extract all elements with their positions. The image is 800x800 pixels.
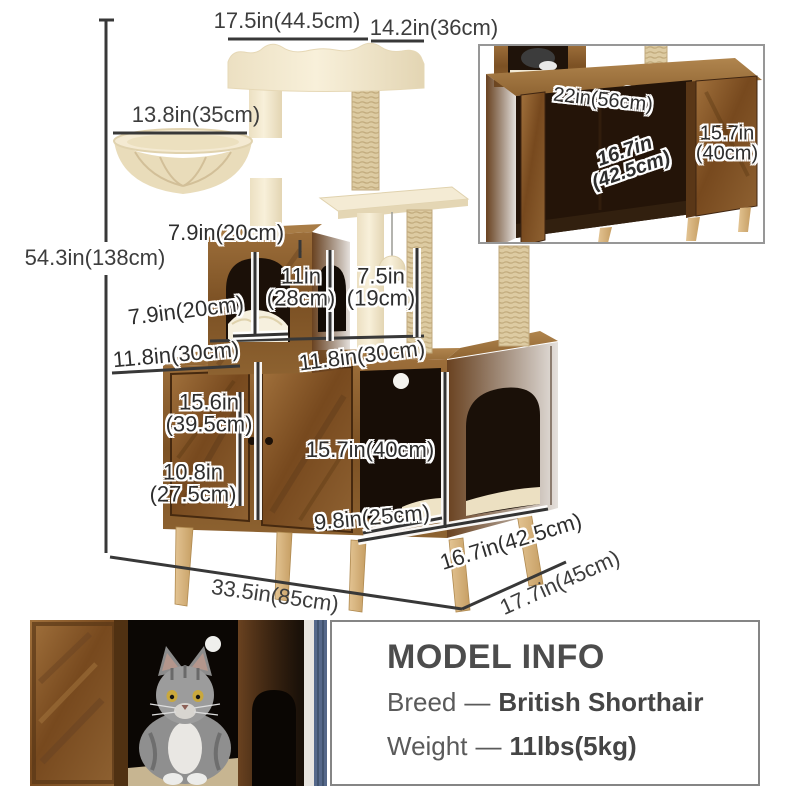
model-info-panel: MODEL INFO Breed—British Shorthair Weigh… [330,620,760,786]
dim-hammock-width: 13.8in(35cm) [132,104,260,126]
dim-condo-height: 7.9in(20cm) [168,222,284,244]
cat-photo [30,620,327,786]
weight-separator: — [475,731,501,761]
dim-condo-interior-height: 11in (28cm) [267,266,335,311]
scratching-post [499,246,529,346]
top-platform [228,43,424,91]
dim-top-platform-depth: 14.2in(36cm) [370,17,498,39]
breed-separator: — [464,687,490,717]
cable-hole [393,373,409,389]
breed-label: Breed [387,687,456,717]
dim-total-height: 54.3in(138cm) [25,247,166,269]
dim-top-platform-width: 17.5in(44.5cm) [214,10,361,32]
dim-inset-door-height: 15.7in (40cm) [696,124,758,165]
dim-post-section-height: 7.5in (19cm) [347,266,415,311]
breed-row: Breed—British Shorthair [387,687,758,718]
dim-lower-section-height: 10.8in (27.5cm) [150,462,237,507]
hammock-basket [114,129,252,194]
door-knob [265,437,273,445]
dim-left-door-height: 15.6in (39.5cm) [166,392,253,437]
scratching-post [352,86,379,190]
weight-label: Weight [387,731,467,761]
weight-row: Weight—11lbs(5kg) [387,731,758,762]
product-dimension-diagram: 17.5in(44.5cm) 14.2in(36cm) 13.8in(35cm)… [0,0,800,800]
model-info-title: MODEL INFO [387,638,758,677]
dim-side-opening-height: 15.7in(40cm) [306,439,434,461]
cable-hole [205,636,221,652]
breed-value: British Shorthair [498,687,703,717]
weight-value: 11lbs(5kg) [509,731,636,761]
